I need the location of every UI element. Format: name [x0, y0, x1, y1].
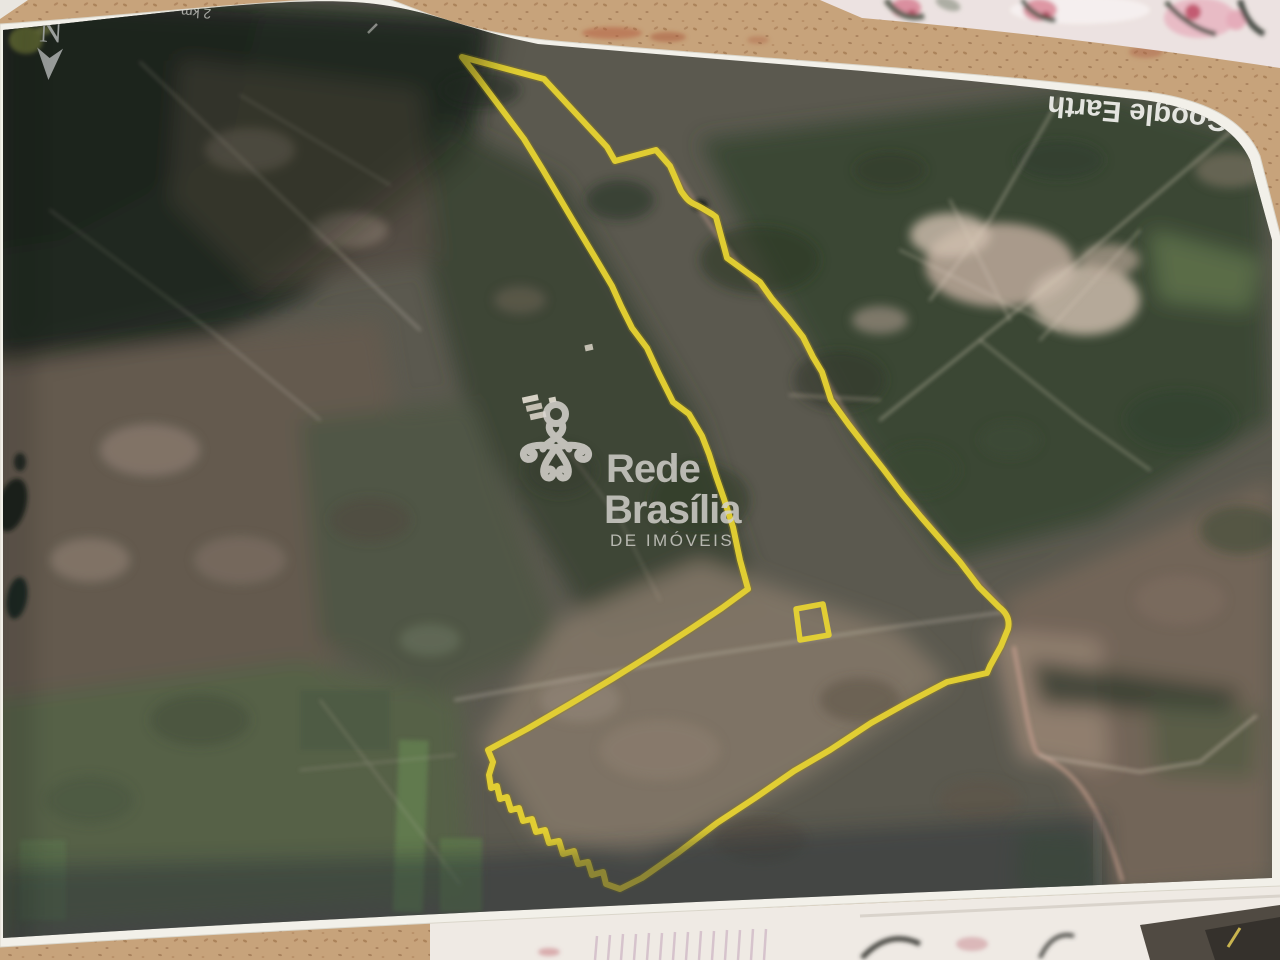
scene: Google Earth 2 km N [0, 0, 1280, 960]
photo-of-printed-map: Google Earth 2 km N [0, 0, 1280, 960]
photo-wash [0, 0, 1280, 960]
